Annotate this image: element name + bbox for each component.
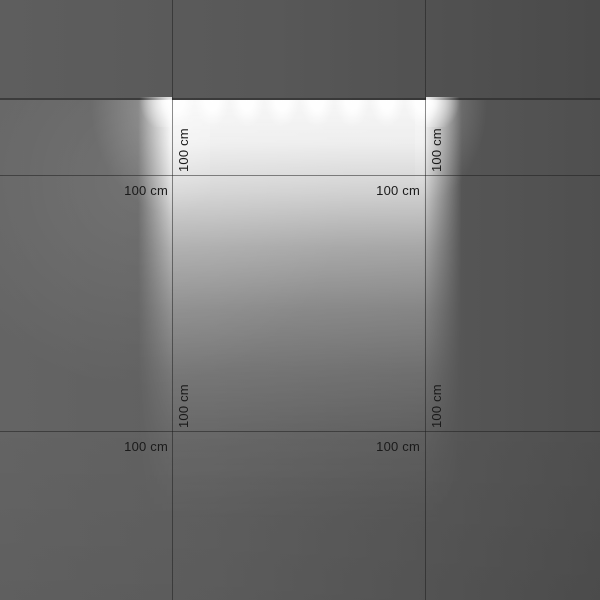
grid-line-horizontal-bottom xyxy=(0,431,600,432)
grid-line-vertical-right xyxy=(425,0,426,600)
measure-label-row1-left: 100 cm xyxy=(98,184,168,198)
shadow-band-above-fixture xyxy=(0,0,600,100)
fixture-end-glow-left xyxy=(138,97,172,127)
measure-label-row2-right: 100 cm xyxy=(350,440,420,454)
fixture-end-glow-right xyxy=(426,97,462,127)
measure-label-row2-left: 100 cm xyxy=(98,440,168,454)
measure-label-col-right-bottom: 100 cm xyxy=(430,382,444,428)
grid-line-vertical-left xyxy=(172,0,173,600)
measure-label-col-left-top: 100 cm xyxy=(177,126,191,172)
measure-label-col-right-top: 100 cm xyxy=(430,126,444,172)
led-scallops xyxy=(0,100,600,164)
measure-label-row1-right: 100 cm xyxy=(350,184,420,198)
lighting-render: 100 cm 100 cm 100 cm 100 cm 100 cm 100 c… xyxy=(0,0,600,600)
measure-label-col-left-bottom: 100 cm xyxy=(177,382,191,428)
grid-line-horizontal-top xyxy=(0,175,600,176)
